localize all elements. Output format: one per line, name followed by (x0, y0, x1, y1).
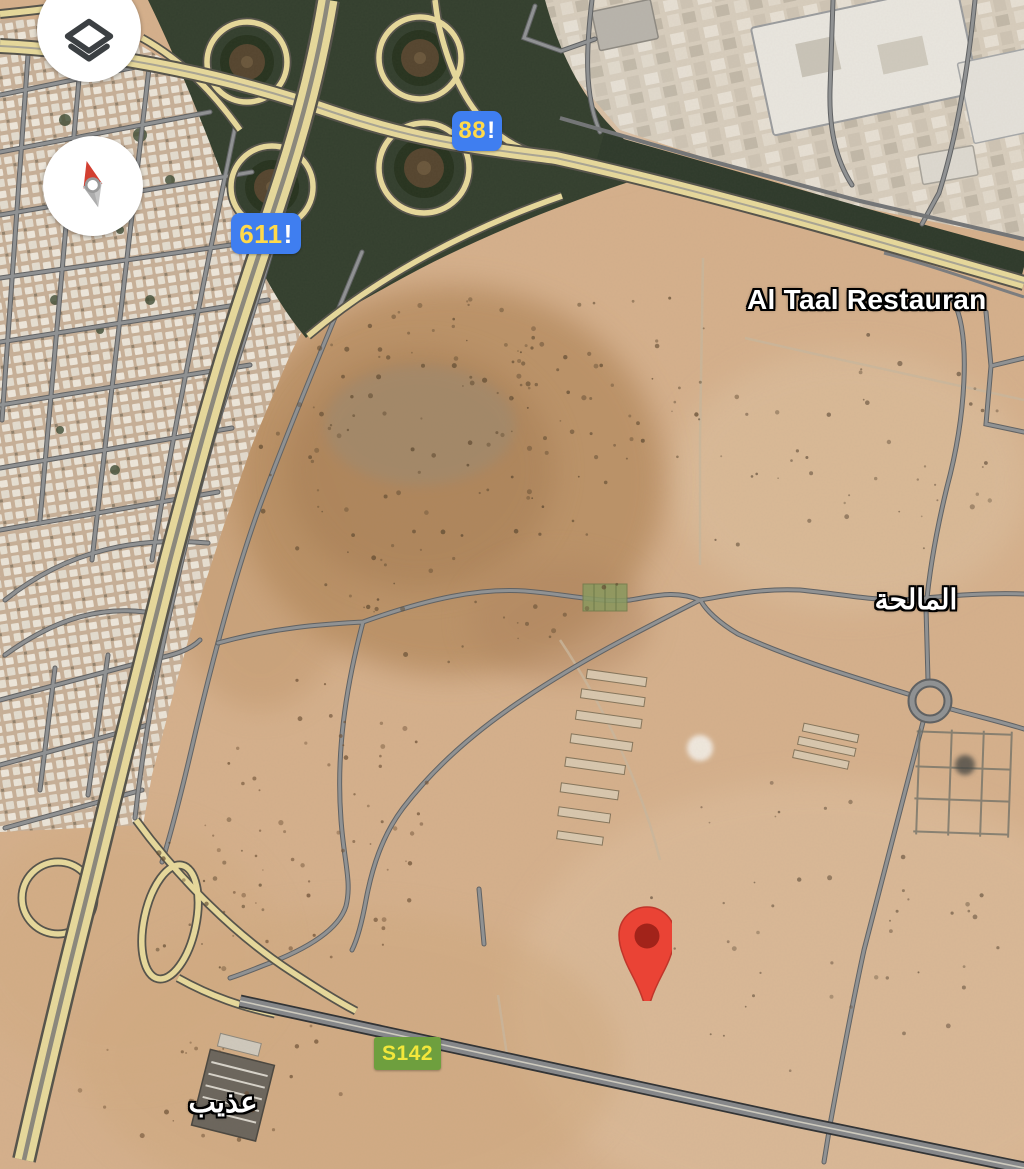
location-marker[interactable] (614, 903, 672, 1001)
route-number: 88 (458, 119, 486, 143)
layers-icon (62, 0, 116, 75)
route-badge-611: 611! (231, 213, 301, 254)
compass-button[interactable] (43, 136, 143, 236)
route-number: 611 (239, 221, 282, 247)
compass-needle-icon (61, 152, 125, 220)
place-label-al-malha[interactable]: المالحة (858, 583, 974, 616)
route-number: S142 (382, 1043, 433, 1064)
route-suffix: ! (284, 221, 293, 247)
place-label-adheeb[interactable]: عذيب (166, 1085, 280, 1120)
route-badge-88: 88! (452, 111, 502, 151)
satellite-map[interactable]: 88! 611! S142 Al Taal Restauran المالحة … (0, 0, 1024, 1169)
place-label-al-taal-restaurant[interactable]: Al Taal Restauran (747, 284, 987, 316)
route-suffix: ! (487, 119, 496, 143)
route-badge-s142: S142 (374, 1037, 441, 1070)
